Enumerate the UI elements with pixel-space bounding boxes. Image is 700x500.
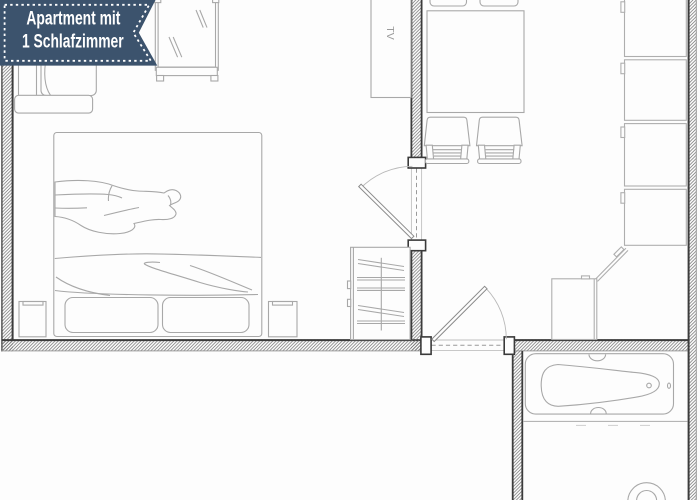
svg-text:Apartment mit: Apartment mit bbox=[26, 7, 120, 29]
svg-text:TV: TV bbox=[384, 26, 396, 39]
svg-text:1 Schlafzimmer: 1 Schlafzimmer bbox=[22, 30, 124, 52]
